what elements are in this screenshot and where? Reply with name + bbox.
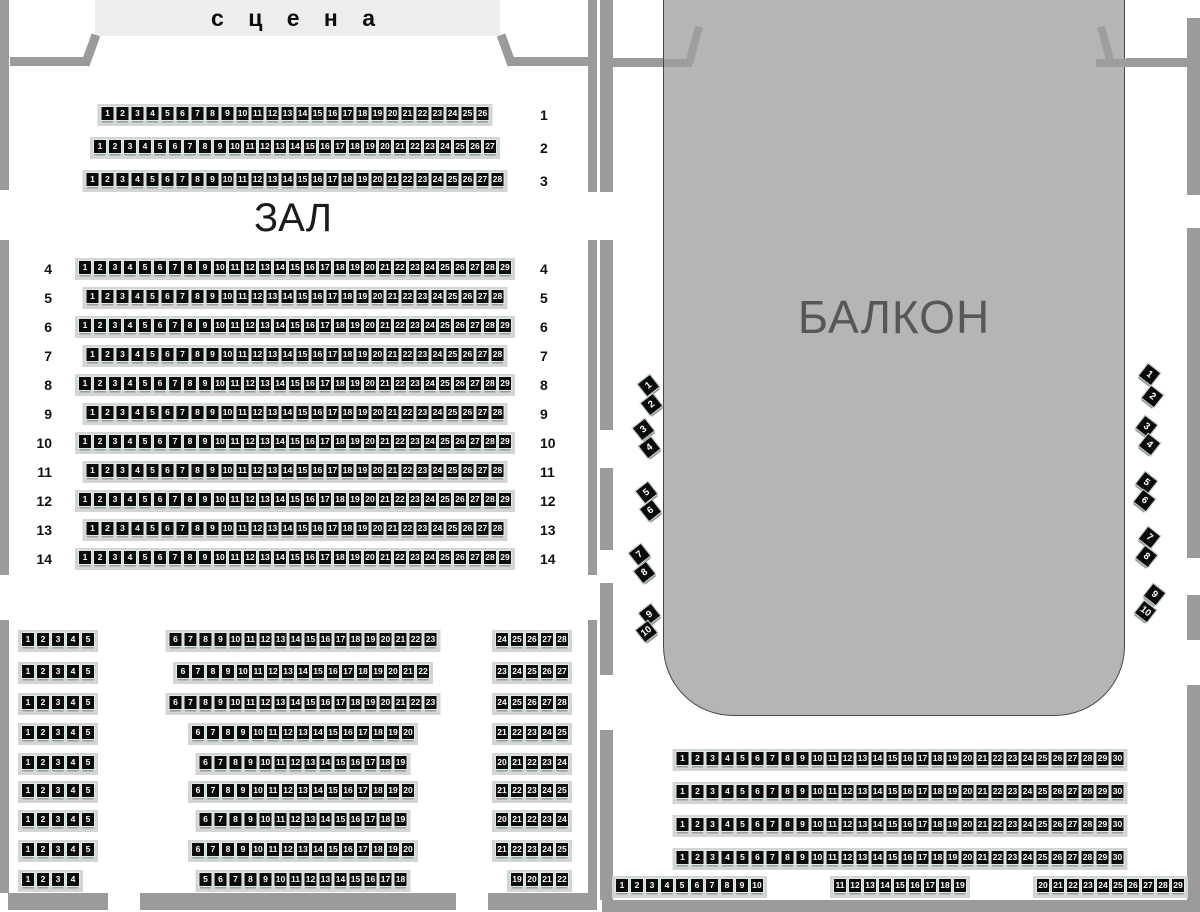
seat[interactable]: 21 xyxy=(976,751,990,766)
seat[interactable]: 13 xyxy=(304,755,318,770)
seat[interactable]: 26 xyxy=(540,664,554,679)
seat[interactable]: 6 xyxy=(161,405,175,420)
seat[interactable]: 12 xyxy=(251,521,265,536)
seat[interactable]: 14 xyxy=(319,812,333,827)
seat[interactable]: 21 xyxy=(378,550,392,565)
seat[interactable]: 26 xyxy=(461,521,475,536)
seat[interactable]: 26 xyxy=(468,139,482,154)
seat[interactable]: 12 xyxy=(259,695,273,710)
seat[interactable]: 27 xyxy=(468,434,482,449)
seat[interactable]: 28 xyxy=(491,405,505,420)
seat[interactable]: 14 xyxy=(273,318,287,333)
seat[interactable]: 20 xyxy=(378,139,392,154)
seat[interactable]: 6 xyxy=(751,817,765,832)
seat[interactable]: 18 xyxy=(938,878,952,893)
seat[interactable]: 19 xyxy=(348,550,362,565)
seat[interactable]: 21 xyxy=(378,434,392,449)
seat[interactable]: 1 xyxy=(78,434,92,449)
seat[interactable]: 16 xyxy=(303,260,317,275)
seat[interactable]: 5 xyxy=(81,783,95,798)
seat[interactable]: 19 xyxy=(348,434,362,449)
seat[interactable]: 4 xyxy=(721,817,735,832)
seat[interactable]: 16 xyxy=(341,783,355,798)
seat[interactable]: 24 xyxy=(423,260,437,275)
seat[interactable]: 7 xyxy=(176,405,190,420)
seat[interactable]: 25 xyxy=(555,783,569,798)
seat[interactable]: 18 xyxy=(333,318,347,333)
seat[interactable]: 1 xyxy=(21,664,35,679)
seat[interactable]: 9 xyxy=(206,347,220,362)
seat[interactable]: 9 xyxy=(796,850,810,865)
seat[interactable]: 21 xyxy=(378,492,392,507)
seat[interactable]: 1 xyxy=(78,260,92,275)
seat[interactable]: 27 xyxy=(468,492,482,507)
seat[interactable]: 21 xyxy=(540,872,554,887)
seat[interactable]: 24 xyxy=(423,492,437,507)
seat[interactable]: 18 xyxy=(341,463,355,478)
seat[interactable]: 2 xyxy=(101,463,115,478)
seat[interactable]: 9 xyxy=(198,318,212,333)
seat[interactable]: 17 xyxy=(356,783,370,798)
seat[interactable]: 26 xyxy=(453,260,467,275)
seat[interactable]: 8 xyxy=(229,755,243,770)
seat[interactable]: 18 xyxy=(356,664,370,679)
seat[interactable]: 12 xyxy=(251,405,265,420)
seat[interactable]: 26 xyxy=(461,405,475,420)
seat[interactable]: 19 xyxy=(348,260,362,275)
seat[interactable]: 3 xyxy=(706,751,720,766)
seat[interactable]: 17 xyxy=(916,850,930,865)
seat[interactable]: 27 xyxy=(1066,784,1080,799)
seat[interactable]: 15 xyxy=(296,405,310,420)
seat[interactable]: 22 xyxy=(991,784,1005,799)
seat[interactable]: 27 xyxy=(1066,817,1080,832)
seat[interactable]: 2 xyxy=(36,812,50,827)
seat[interactable]: 27 xyxy=(1141,878,1155,893)
seat[interactable]: 14 xyxy=(273,434,287,449)
seat[interactable]: 2 xyxy=(36,664,50,679)
seat[interactable]: 13 xyxy=(856,751,870,766)
seat[interactable]: 1 xyxy=(21,783,35,798)
seat[interactable]: 22 xyxy=(510,725,524,740)
seat[interactable]: 22 xyxy=(510,842,524,857)
seat[interactable]: 23 xyxy=(525,783,539,798)
seat[interactable]: 4 xyxy=(123,492,137,507)
seat[interactable]: 19 xyxy=(363,139,377,154)
seat[interactable]: 7 xyxy=(206,842,220,857)
seat[interactable]: 26 xyxy=(461,463,475,478)
balcony-side-seat[interactable]: 7 xyxy=(1138,526,1162,550)
seat[interactable]: 4 xyxy=(66,664,80,679)
seat[interactable]: 14 xyxy=(289,695,303,710)
seat[interactable]: 15 xyxy=(334,812,348,827)
seat[interactable]: 21 xyxy=(378,260,392,275)
seat[interactable]: 25 xyxy=(446,347,460,362)
seat[interactable]: 13 xyxy=(856,817,870,832)
seat[interactable]: 24 xyxy=(495,695,509,710)
seat[interactable]: 21 xyxy=(510,812,524,827)
seat[interactable]: 12 xyxy=(841,751,855,766)
seat[interactable]: 24 xyxy=(540,725,554,740)
seat[interactable]: 24 xyxy=(431,405,445,420)
seat[interactable]: 8 xyxy=(781,751,795,766)
seat[interactable]: 22 xyxy=(555,872,569,887)
seat[interactable]: 28 xyxy=(483,492,497,507)
seat[interactable]: 15 xyxy=(304,695,318,710)
seat[interactable]: 8 xyxy=(221,783,235,798)
seat[interactable]: 16 xyxy=(303,434,317,449)
seat[interactable]: 20 xyxy=(363,550,377,565)
seat[interactable]: 11 xyxy=(228,260,242,275)
seat[interactable]: 20 xyxy=(1036,878,1050,893)
seat[interactable]: 8 xyxy=(183,376,197,391)
seat[interactable]: 28 xyxy=(555,632,569,647)
seat[interactable]: 11 xyxy=(826,817,840,832)
seat[interactable]: 1 xyxy=(86,347,100,362)
seat[interactable]: 18 xyxy=(379,755,393,770)
seat[interactable]: 2 xyxy=(93,550,107,565)
seat[interactable]: 24 xyxy=(1021,784,1035,799)
seat[interactable]: 2 xyxy=(36,695,50,710)
seat[interactable]: 7 xyxy=(168,434,182,449)
seat[interactable]: 12 xyxy=(258,139,272,154)
seat[interactable]: 10 xyxy=(213,434,227,449)
seat[interactable]: 1 xyxy=(21,632,35,647)
seat[interactable]: 14 xyxy=(296,106,310,121)
seat[interactable]: 2 xyxy=(101,405,115,420)
seat[interactable]: 3 xyxy=(108,550,122,565)
seat[interactable]: 27 xyxy=(1066,850,1080,865)
seat[interactable]: 24 xyxy=(423,434,437,449)
seat[interactable]: 18 xyxy=(341,172,355,187)
seat[interactable]: 2 xyxy=(36,632,50,647)
seat[interactable]: 27 xyxy=(468,376,482,391)
seat[interactable]: 14 xyxy=(281,347,295,362)
seat[interactable]: 25 xyxy=(446,289,460,304)
seat[interactable]: 6 xyxy=(751,850,765,865)
seat[interactable]: 17 xyxy=(356,725,370,740)
seat[interactable]: 8 xyxy=(198,139,212,154)
seat[interactable]: 23 xyxy=(408,492,422,507)
seat[interactable]: 24 xyxy=(431,172,445,187)
seat[interactable]: 22 xyxy=(393,318,407,333)
seat[interactable]: 6 xyxy=(153,550,167,565)
seat[interactable]: 14 xyxy=(273,492,287,507)
seat[interactable]: 4 xyxy=(66,842,80,857)
seat[interactable]: 16 xyxy=(311,289,325,304)
seat[interactable]: 9 xyxy=(796,784,810,799)
seat[interactable]: 3 xyxy=(51,725,65,740)
seat[interactable]: 27 xyxy=(476,463,490,478)
seat[interactable]: 18 xyxy=(371,783,385,798)
seat[interactable]: 14 xyxy=(281,289,295,304)
seat[interactable]: 9 xyxy=(236,725,250,740)
seat[interactable]: 25 xyxy=(446,521,460,536)
seat[interactable]: 15 xyxy=(311,664,325,679)
seat[interactable]: 16 xyxy=(341,725,355,740)
seat[interactable]: 23 xyxy=(1006,751,1020,766)
seat[interactable]: 26 xyxy=(525,695,539,710)
seat[interactable]: 20 xyxy=(961,784,975,799)
seat[interactable]: 29 xyxy=(498,434,512,449)
seat[interactable]: 3 xyxy=(108,376,122,391)
seat[interactable]: 25 xyxy=(555,725,569,740)
seat[interactable]: 19 xyxy=(953,878,967,893)
seat[interactable]: 11 xyxy=(244,632,258,647)
seat[interactable]: 22 xyxy=(525,812,539,827)
seat[interactable]: 25 xyxy=(461,106,475,121)
seat[interactable]: 25 xyxy=(510,695,524,710)
seat[interactable]: 15 xyxy=(311,106,325,121)
seat[interactable]: 19 xyxy=(510,872,524,887)
seat[interactable]: 3 xyxy=(116,405,130,420)
seat[interactable]: 24 xyxy=(431,347,445,362)
seat[interactable]: 2 xyxy=(116,106,130,121)
seat[interactable]: 2 xyxy=(36,842,50,857)
seat[interactable]: 23 xyxy=(408,550,422,565)
seat[interactable]: 21 xyxy=(386,347,400,362)
seat[interactable]: 5 xyxy=(81,842,95,857)
seat[interactable]: 7 xyxy=(705,878,719,893)
seat[interactable]: 28 xyxy=(483,434,497,449)
seat[interactable]: 21 xyxy=(386,463,400,478)
seat[interactable]: 11 xyxy=(266,725,280,740)
seat[interactable]: 5 xyxy=(81,695,95,710)
seat[interactable]: 14 xyxy=(871,817,885,832)
seat[interactable]: 10 xyxy=(221,405,235,420)
seat[interactable]: 7 xyxy=(183,139,197,154)
seat[interactable]: 14 xyxy=(311,783,325,798)
seat[interactable]: 11 xyxy=(236,289,250,304)
seat[interactable]: 17 xyxy=(923,878,937,893)
seat[interactable]: 28 xyxy=(491,463,505,478)
seat[interactable]: 4 xyxy=(721,751,735,766)
seat[interactable]: 29 xyxy=(498,318,512,333)
seat[interactable]: 5 xyxy=(138,260,152,275)
seat[interactable]: 28 xyxy=(555,695,569,710)
seat[interactable]: 27 xyxy=(476,347,490,362)
balcony-side-seat[interactable]: 2 xyxy=(1141,385,1165,409)
seat[interactable]: 5 xyxy=(81,812,95,827)
seat[interactable]: 26 xyxy=(476,106,490,121)
seat[interactable]: 13 xyxy=(304,812,318,827)
seat[interactable]: 8 xyxy=(781,784,795,799)
seat[interactable]: 1 xyxy=(86,521,100,536)
seat[interactable]: 25 xyxy=(525,664,539,679)
seat[interactable]: 9 xyxy=(236,783,250,798)
seat[interactable]: 27 xyxy=(468,260,482,275)
seat[interactable]: 13 xyxy=(266,405,280,420)
seat[interactable]: 1 xyxy=(676,850,690,865)
seat[interactable]: 9 xyxy=(796,751,810,766)
seat[interactable]: 4 xyxy=(131,463,145,478)
seat[interactable]: 20 xyxy=(363,318,377,333)
seat[interactable]: 7 xyxy=(168,492,182,507)
seat[interactable]: 14 xyxy=(281,521,295,536)
seat[interactable]: 13 xyxy=(273,139,287,154)
seat[interactable]: 1 xyxy=(676,817,690,832)
seat[interactable]: 5 xyxy=(146,405,160,420)
seat[interactable]: 28 xyxy=(1156,878,1170,893)
seat[interactable]: 21 xyxy=(386,172,400,187)
seat[interactable]: 16 xyxy=(341,842,355,857)
seat[interactable]: 8 xyxy=(199,695,213,710)
seat[interactable]: 17 xyxy=(318,318,332,333)
seat[interactable]: 4 xyxy=(123,260,137,275)
seat[interactable]: 15 xyxy=(288,260,302,275)
seat[interactable]: 26 xyxy=(525,632,539,647)
seat[interactable]: 9 xyxy=(244,812,258,827)
seat[interactable]: 3 xyxy=(116,347,130,362)
seat[interactable]: 5 xyxy=(199,872,213,887)
seat[interactable]: 9 xyxy=(214,632,228,647)
seat[interactable]: 21 xyxy=(394,695,408,710)
seat[interactable]: 6 xyxy=(153,318,167,333)
seat[interactable]: 11 xyxy=(244,695,258,710)
seat[interactable]: 12 xyxy=(841,817,855,832)
seat[interactable]: 29 xyxy=(498,492,512,507)
seat[interactable]: 11 xyxy=(228,492,242,507)
seat[interactable]: 21 xyxy=(976,817,990,832)
seat[interactable]: 21 xyxy=(1051,878,1065,893)
seat[interactable]: 9 xyxy=(198,260,212,275)
seat[interactable]: 22 xyxy=(416,664,430,679)
seat[interactable]: 11 xyxy=(236,347,250,362)
seat[interactable]: 19 xyxy=(946,751,960,766)
seat[interactable]: 10 xyxy=(221,347,235,362)
balcony-side-seat[interactable]: 6 xyxy=(639,499,663,523)
seat[interactable]: 3 xyxy=(108,260,122,275)
seat[interactable]: 29 xyxy=(498,376,512,391)
seat[interactable]: 11 xyxy=(289,872,303,887)
seat[interactable]: 8 xyxy=(720,878,734,893)
seat[interactable]: 17 xyxy=(341,106,355,121)
seat[interactable]: 24 xyxy=(438,139,452,154)
seat[interactable]: 17 xyxy=(326,347,340,362)
seat[interactable]: 9 xyxy=(244,755,258,770)
seat[interactable]: 24 xyxy=(446,106,460,121)
seat[interactable]: 6 xyxy=(161,289,175,304)
seat[interactable]: 21 xyxy=(386,521,400,536)
seat[interactable]: 15 xyxy=(296,521,310,536)
seat[interactable]: 23 xyxy=(525,725,539,740)
seat[interactable]: 11 xyxy=(274,812,288,827)
seat[interactable]: 3 xyxy=(123,139,137,154)
seat[interactable]: 7 xyxy=(184,695,198,710)
seat[interactable]: 29 xyxy=(498,260,512,275)
seat[interactable]: 18 xyxy=(341,289,355,304)
seat[interactable]: 27 xyxy=(540,632,554,647)
seat[interactable]: 4 xyxy=(123,376,137,391)
seat[interactable]: 23 xyxy=(540,812,554,827)
seat[interactable]: 1 xyxy=(615,878,629,893)
seat[interactable]: 4 xyxy=(131,521,145,536)
seat[interactable]: 11 xyxy=(236,521,250,536)
seat[interactable]: 10 xyxy=(811,751,825,766)
seat[interactable]: 13 xyxy=(266,521,280,536)
seat[interactable]: 20 xyxy=(371,172,385,187)
seat[interactable]: 27 xyxy=(476,289,490,304)
seat[interactable]: 3 xyxy=(108,492,122,507)
seat[interactable]: 26 xyxy=(453,376,467,391)
seat[interactable]: 18 xyxy=(371,842,385,857)
seat[interactable]: 13 xyxy=(258,434,272,449)
seat[interactable]: 4 xyxy=(66,695,80,710)
seat[interactable]: 21 xyxy=(378,376,392,391)
seat[interactable]: 6 xyxy=(176,106,190,121)
seat[interactable]: 23 xyxy=(408,318,422,333)
balcony-side-seat[interactable]: 1 xyxy=(637,374,661,398)
seat[interactable]: 14 xyxy=(871,751,885,766)
seat[interactable]: 8 xyxy=(229,812,243,827)
seat[interactable]: 10 xyxy=(229,632,243,647)
seat[interactable]: 10 xyxy=(811,784,825,799)
seat[interactable]: 11 xyxy=(228,376,242,391)
seat[interactable]: 25 xyxy=(438,376,452,391)
seat[interactable]: 10 xyxy=(221,172,235,187)
seat[interactable]: 17 xyxy=(318,376,332,391)
seat[interactable]: 28 xyxy=(483,376,497,391)
seat[interactable]: 5 xyxy=(146,463,160,478)
seat[interactable]: 3 xyxy=(51,783,65,798)
seat[interactable]: 13 xyxy=(856,850,870,865)
seat[interactable]: 7 xyxy=(766,784,780,799)
seat[interactable]: 1 xyxy=(78,492,92,507)
seat[interactable]: 5 xyxy=(153,139,167,154)
seat[interactable]: 8 xyxy=(183,550,197,565)
seat[interactable]: 4 xyxy=(123,434,137,449)
seat[interactable]: 2 xyxy=(691,751,705,766)
seat[interactable]: 23 xyxy=(1006,784,1020,799)
seat[interactable]: 16 xyxy=(303,550,317,565)
seat[interactable]: 13 xyxy=(258,318,272,333)
seat[interactable]: 5 xyxy=(736,817,750,832)
seat[interactable]: 20 xyxy=(961,850,975,865)
seat[interactable]: 6 xyxy=(199,812,213,827)
seat[interactable]: 8 xyxy=(191,289,205,304)
seat[interactable]: 11 xyxy=(228,318,242,333)
seat[interactable]: 17 xyxy=(326,463,340,478)
seat[interactable]: 6 xyxy=(191,725,205,740)
seat[interactable]: 22 xyxy=(1066,878,1080,893)
seat[interactable]: 5 xyxy=(146,172,160,187)
balcony-side-seat[interactable]: 8 xyxy=(1135,545,1159,569)
seat[interactable]: 22 xyxy=(409,632,423,647)
seat[interactable]: 10 xyxy=(229,695,243,710)
seat[interactable]: 7 xyxy=(168,260,182,275)
seat[interactable]: 9 xyxy=(213,139,227,154)
seat[interactable]: 7 xyxy=(191,664,205,679)
seat[interactable]: 2 xyxy=(691,850,705,865)
seat[interactable]: 3 xyxy=(645,878,659,893)
seat[interactable]: 24 xyxy=(555,812,569,827)
seat[interactable]: 19 xyxy=(946,850,960,865)
seat[interactable]: 24 xyxy=(423,376,437,391)
seat[interactable]: 5 xyxy=(138,434,152,449)
seat[interactable]: 21 xyxy=(495,725,509,740)
seat[interactable]: 14 xyxy=(281,463,295,478)
seat[interactable]: 19 xyxy=(356,405,370,420)
seat[interactable]: 25 xyxy=(438,434,452,449)
seat[interactable]: 25 xyxy=(1036,850,1050,865)
seat[interactable]: 5 xyxy=(138,550,152,565)
seat[interactable]: 23 xyxy=(408,260,422,275)
seat[interactable]: 28 xyxy=(1081,751,1095,766)
seat[interactable]: 24 xyxy=(510,664,524,679)
seat[interactable]: 18 xyxy=(349,632,363,647)
seat[interactable]: 20 xyxy=(401,842,415,857)
seat[interactable]: 16 xyxy=(311,521,325,536)
